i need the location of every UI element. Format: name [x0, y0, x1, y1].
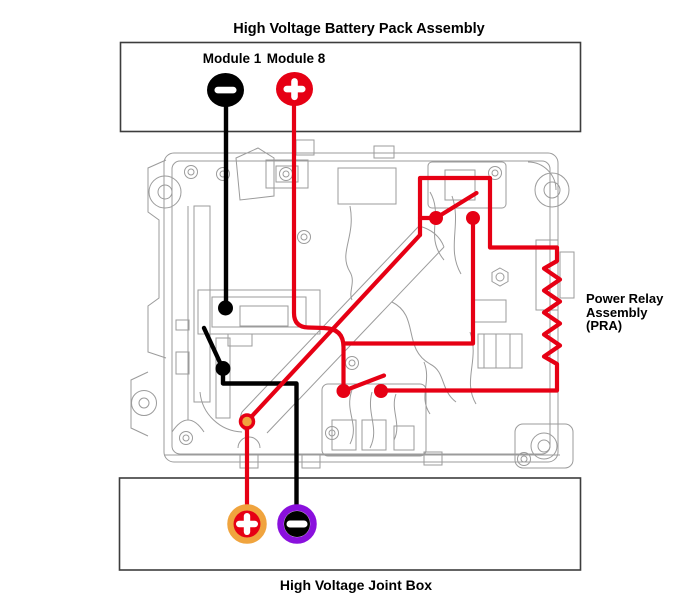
- negative-relay-contact-upper: [218, 301, 233, 316]
- precharge-relay-contact-right: [374, 384, 388, 398]
- hex-bolt-icon: [492, 268, 508, 286]
- module8-positive-terminal-icon: [276, 72, 313, 106]
- joint-box-negative-terminal-icon: [281, 508, 314, 541]
- negative-output-wire: [223, 369, 297, 509]
- battery-pack-title: High Voltage Battery Pack Assembly: [159, 21, 559, 37]
- diagram-stage: High Voltage Battery Pack Assembly Modul…: [0, 0, 700, 615]
- pra-label: Power Relay Assembly (PRA): [586, 292, 663, 333]
- positive-junction-dot: [241, 415, 254, 428]
- joint-box-positive-terminal-icon: [231, 508, 264, 541]
- module8-label: Module 8: [246, 51, 346, 66]
- junction-box-drawing: [131, 140, 574, 468]
- diagonal-duct: [240, 226, 444, 433]
- positive-output-diagonal: [247, 235, 420, 422]
- precharge-resistor-symbol: [381, 178, 560, 391]
- left-mount-ear: [148, 160, 166, 358]
- positive-circuit: [241, 72, 561, 506]
- joint-box-box: [120, 478, 581, 570]
- module1-negative-terminal-icon: [207, 73, 244, 107]
- module8-wire: [294, 95, 344, 384]
- pra-label-line3: (PRA): [586, 319, 663, 333]
- pra-label-line1: Power Relay: [586, 292, 663, 306]
- joint-box-title: High Voltage Joint Box: [206, 577, 506, 593]
- pra-label-line2: Assembly: [586, 306, 663, 320]
- main-relay-contact-right: [466, 211, 480, 225]
